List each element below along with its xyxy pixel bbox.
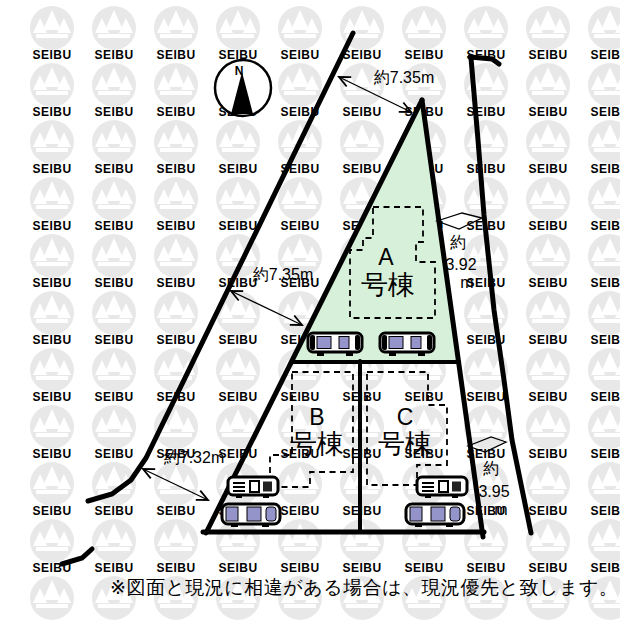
car-icon bbox=[406, 504, 464, 527]
site-plan-drawing: N A 号棟 B 号棟 C 号棟 約7.35m 約7.35m bbox=[0, 0, 620, 620]
car-icon bbox=[308, 333, 362, 356]
svg-text:3.95: 3.95 bbox=[478, 483, 509, 500]
building-b-suffix: 号棟 bbox=[290, 429, 344, 459]
dimension-label-top: 約7.35m bbox=[374, 69, 434, 86]
building-b-letter: B bbox=[309, 404, 324, 430]
site-plan-page: SEIBUSEIBUSEIBUSEIBUSEIBUSEIBUSEIBUSEIBU… bbox=[0, 0, 620, 620]
car-icon bbox=[417, 477, 467, 498]
svg-text:m: m bbox=[460, 274, 473, 291]
dimension-arrow-right-lower bbox=[468, 437, 506, 452]
dimension-label-right-lower: 約 3.95 m bbox=[478, 460, 509, 518]
compass-north-label: N bbox=[235, 64, 244, 78]
building-a-suffix: 号棟 bbox=[361, 270, 415, 300]
dimension-arrow-bottom-left bbox=[143, 469, 208, 500]
dimension-label-bottom-left: 約7.32m bbox=[164, 449, 224, 466]
building-a-letter: A bbox=[378, 244, 394, 270]
dimension-arrow-right-upper bbox=[437, 213, 482, 229]
car-icon bbox=[380, 333, 434, 356]
svg-text:3.92: 3.92 bbox=[445, 256, 476, 273]
road-line-right bbox=[471, 58, 531, 533]
north-compass: N bbox=[215, 60, 271, 116]
road-line-left-continuation bbox=[62, 549, 92, 564]
road-line-right-hook bbox=[470, 57, 499, 64]
lot-a-green-area bbox=[292, 100, 459, 362]
svg-text:約: 約 bbox=[450, 234, 466, 251]
car-icon bbox=[222, 504, 280, 527]
dimension-arrow-left bbox=[231, 291, 302, 325]
car-icon bbox=[228, 477, 278, 498]
building-c-suffix: 号棟 bbox=[378, 429, 432, 459]
building-c-letter: C bbox=[397, 404, 414, 430]
dimension-label-left: 約7.35m bbox=[253, 266, 313, 283]
footnote-disclaimer: ※図面と現況に相違がある場合は、現況優先と致します。 bbox=[110, 577, 618, 598]
svg-text:約: 約 bbox=[483, 460, 499, 477]
dimension-label-right-upper: 約 3.92 m bbox=[445, 234, 476, 291]
svg-text:m: m bbox=[494, 501, 507, 518]
